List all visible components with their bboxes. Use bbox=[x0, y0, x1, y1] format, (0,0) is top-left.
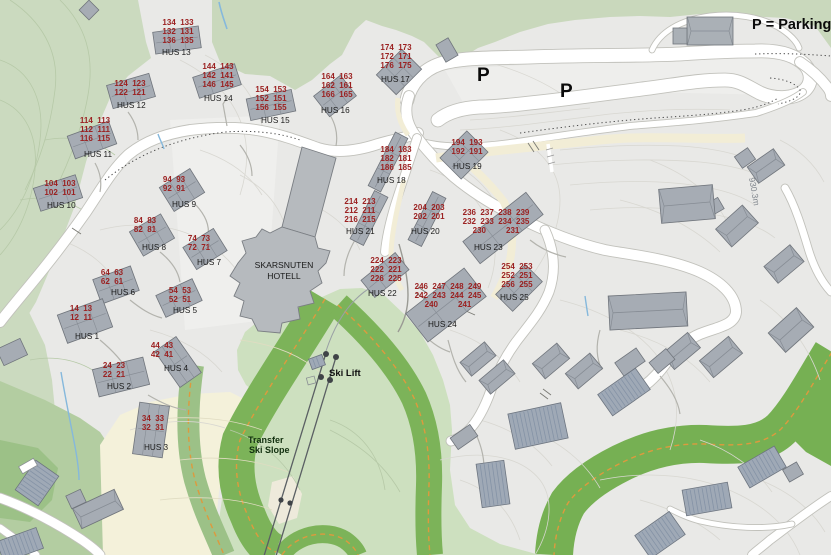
svg-text:174 173: 174 173 bbox=[380, 43, 412, 52]
svg-text:212 211: 212 211 bbox=[345, 206, 376, 215]
svg-text:164 163: 164 163 bbox=[321, 72, 353, 81]
svg-text:HUS 17: HUS 17 bbox=[381, 75, 410, 84]
svg-text:34 33: 34 33 bbox=[142, 414, 165, 423]
svg-text:HUS 9: HUS 9 bbox=[172, 200, 197, 209]
svg-text:HUS 11: HUS 11 bbox=[84, 150, 113, 159]
svg-text:Ski Lift: Ski Lift bbox=[329, 368, 362, 379]
svg-text:166 165: 166 165 bbox=[321, 90, 353, 99]
svg-text:HUS 14: HUS 14 bbox=[204, 94, 233, 103]
svg-text:176 175: 176 175 bbox=[380, 61, 412, 70]
svg-text:32 31: 32 31 bbox=[142, 423, 165, 432]
svg-text:82 81: 82 81 bbox=[134, 225, 157, 234]
svg-text:240 241: 240 241 bbox=[425, 300, 472, 309]
svg-text:114 113: 114 113 bbox=[80, 116, 111, 125]
svg-text:HUS 6: HUS 6 bbox=[111, 288, 136, 297]
svg-text:P: P bbox=[477, 65, 490, 86]
svg-text:162 161: 162 161 bbox=[321, 81, 353, 90]
svg-text:HUS 23: HUS 23 bbox=[474, 243, 503, 252]
svg-text:192 191: 192 191 bbox=[451, 147, 483, 156]
svg-text:104 103: 104 103 bbox=[44, 179, 76, 188]
svg-text:92 91: 92 91 bbox=[163, 184, 186, 193]
svg-text:HUS 22: HUS 22 bbox=[368, 289, 397, 298]
svg-text:132 131: 132 131 bbox=[162, 27, 194, 36]
svg-text:84 83: 84 83 bbox=[134, 216, 157, 225]
svg-text:230 231: 230 231 bbox=[473, 226, 520, 235]
svg-text:156 155: 156 155 bbox=[255, 103, 287, 112]
svg-text:Ski Slope: Ski Slope bbox=[249, 445, 290, 455]
svg-text:254 253: 254 253 bbox=[501, 262, 533, 271]
svg-text:186 185: 186 185 bbox=[380, 163, 412, 172]
svg-text:HOTELL: HOTELL bbox=[267, 271, 301, 281]
svg-text:42 41: 42 41 bbox=[151, 350, 174, 359]
svg-text:HUS 18: HUS 18 bbox=[377, 176, 406, 185]
svg-text:HUS 1: HUS 1 bbox=[75, 332, 100, 341]
svg-text:HUS 25: HUS 25 bbox=[500, 293, 529, 302]
svg-text:22 21: 22 21 bbox=[103, 370, 126, 379]
svg-text:142 141: 142 141 bbox=[202, 71, 234, 80]
svg-text:HUS 16: HUS 16 bbox=[321, 106, 350, 115]
svg-text:P = Parking: P = Parking bbox=[752, 17, 831, 33]
svg-text:94 93: 94 93 bbox=[163, 175, 186, 184]
svg-text:116 115: 116 115 bbox=[80, 134, 111, 143]
svg-text:154 153: 154 153 bbox=[255, 85, 287, 94]
svg-text:124 123: 124 123 bbox=[114, 79, 146, 88]
svg-text:74 73: 74 73 bbox=[188, 234, 211, 243]
svg-text:252 251: 252 251 bbox=[501, 271, 533, 280]
svg-text:102 101: 102 101 bbox=[44, 188, 76, 197]
svg-text:HUS 7: HUS 7 bbox=[197, 258, 222, 267]
svg-text:HUS 24: HUS 24 bbox=[428, 320, 457, 329]
svg-text:HUS 13: HUS 13 bbox=[162, 48, 191, 57]
svg-text:222 221: 222 221 bbox=[370, 265, 402, 274]
svg-text:24 23: 24 23 bbox=[103, 361, 126, 370]
svg-text:HUS 5: HUS 5 bbox=[173, 306, 198, 315]
svg-text:112 111: 112 111 bbox=[80, 125, 110, 134]
svg-text:242 243 244 245: 242 243 244 245 bbox=[415, 291, 482, 300]
svg-text:HUS 3: HUS 3 bbox=[144, 443, 169, 452]
svg-text:172 171: 172 171 bbox=[380, 52, 412, 61]
svg-text:232 233 234 235: 232 233 234 235 bbox=[463, 217, 530, 226]
svg-text:152 151: 152 151 bbox=[255, 94, 287, 103]
svg-text:236 237 238 239: 236 237 238 239 bbox=[463, 208, 530, 217]
svg-text:Transfer: Transfer bbox=[248, 435, 284, 445]
svg-text:54 53: 54 53 bbox=[169, 286, 192, 295]
svg-text:202 201: 202 201 bbox=[413, 212, 445, 221]
svg-text:14 13: 14 13 bbox=[70, 304, 93, 313]
svg-text:72 71: 72 71 bbox=[188, 243, 211, 252]
svg-text:HUS 20: HUS 20 bbox=[411, 227, 440, 236]
svg-text:256 255: 256 255 bbox=[501, 280, 533, 289]
svg-text:HUS 2: HUS 2 bbox=[107, 382, 132, 391]
svg-text:146 145: 146 145 bbox=[202, 80, 234, 89]
svg-text:HUS 10: HUS 10 bbox=[47, 201, 76, 210]
svg-text:12 11: 12 11 bbox=[70, 313, 92, 322]
svg-text:246 247 248 249: 246 247 248 249 bbox=[415, 282, 482, 291]
svg-text:122 121: 122 121 bbox=[114, 88, 146, 97]
svg-text:224 223: 224 223 bbox=[370, 256, 402, 265]
svg-text:216 215: 216 215 bbox=[344, 215, 376, 224]
svg-text:HUS 4: HUS 4 bbox=[164, 364, 189, 373]
svg-text:HUS 12: HUS 12 bbox=[117, 101, 146, 110]
svg-text:44 43: 44 43 bbox=[151, 341, 174, 350]
svg-text:182 181: 182 181 bbox=[380, 154, 412, 163]
svg-text:144 143: 144 143 bbox=[202, 62, 234, 71]
svg-text:136 135: 136 135 bbox=[162, 36, 194, 45]
svg-text:184 183: 184 183 bbox=[380, 145, 412, 154]
svg-text:64 63: 64 63 bbox=[101, 268, 124, 277]
svg-text:214 213: 214 213 bbox=[344, 197, 376, 206]
svg-text:HUS 21: HUS 21 bbox=[346, 227, 375, 236]
svg-text:194 193: 194 193 bbox=[451, 138, 483, 147]
svg-text:SKARSNUTEN: SKARSNUTEN bbox=[255, 260, 314, 270]
svg-text:HUS 15: HUS 15 bbox=[261, 116, 290, 125]
svg-text:HUS 8: HUS 8 bbox=[142, 243, 167, 252]
svg-text:134 133: 134 133 bbox=[162, 18, 194, 27]
svg-text:P: P bbox=[560, 81, 573, 102]
svg-text:52 51: 52 51 bbox=[169, 295, 192, 304]
svg-text:HUS 19: HUS 19 bbox=[453, 162, 482, 171]
svg-text:204 203: 204 203 bbox=[413, 203, 445, 212]
svg-text:226 225: 226 225 bbox=[370, 274, 402, 283]
svg-text:62 61: 62 61 bbox=[101, 277, 124, 286]
